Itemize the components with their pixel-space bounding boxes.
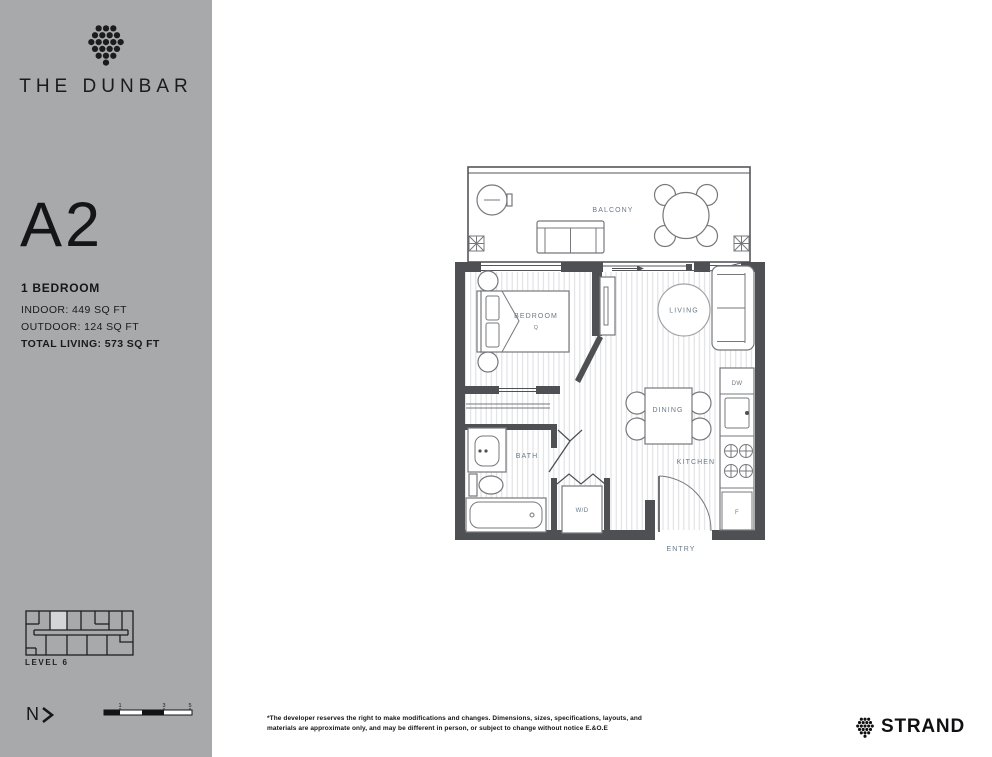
sidebar: THE DUNBAR A2 1 BEDROOM INDOOR: 449 SQ F… <box>0 0 212 757</box>
nightstand <box>478 271 498 291</box>
dishwasher-label: DW <box>732 381 743 387</box>
dining-label: DINING <box>652 407 683 414</box>
planter-icon <box>469 236 484 251</box>
north-chevron-icon <box>40 705 55 725</box>
north-label: N <box>26 704 39 725</box>
entry-label: ENTRY <box>666 546 695 553</box>
strand-wordmark: STRAND <box>881 716 965 738</box>
plan-name: A2 <box>20 194 103 257</box>
brand-title: THE DUNBAR <box>0 76 212 98</box>
strand-logo: STRAND <box>855 716 965 738</box>
bedroom-label: BEDROOM <box>514 313 558 320</box>
stat-outdoor: OUTDOOR: 124 SQ FT <box>21 319 160 336</box>
living-sofa <box>712 266 754 350</box>
vanity-sink <box>468 428 506 472</box>
living-label: LIVING <box>669 308 699 315</box>
building-keyplan <box>24 608 136 662</box>
toilet <box>469 474 503 496</box>
level-label: LEVEL 6 <box>25 658 69 667</box>
balcony-dining-set <box>655 185 718 247</box>
slider-stop <box>686 264 692 270</box>
balcony-sofa <box>537 221 604 253</box>
tv-console <box>600 277 615 335</box>
plan-type: 1 BEDROOM <box>21 281 100 295</box>
stat-indoor: INDOOR: 449 SQ FT <box>21 302 160 319</box>
balcony-label: BALCONY <box>592 207 633 214</box>
north-arrow: N <box>26 704 55 725</box>
kitchen-counter <box>720 368 754 530</box>
planter-icon <box>734 236 749 251</box>
fridge-label: F <box>735 510 739 516</box>
bath-label: BATH <box>516 453 539 460</box>
bathtub <box>466 498 546 532</box>
scale-bar: 1 3 5 <box>102 701 196 718</box>
kitchen-label: KITCHEN <box>677 459 715 466</box>
wd-label: W/D <box>576 508 589 514</box>
plan-stats: INDOOR: 449 SQ FT OUTDOOR: 124 SQ FT TOT… <box>21 302 160 353</box>
floor-plan: BALCONY <box>435 148 795 568</box>
dunbar-logo-icon <box>86 24 126 66</box>
disclaimer-text: *The developer reserves the right to mak… <box>267 714 665 734</box>
strand-logo-icon <box>855 717 875 738</box>
keyplan-unit-highlight <box>50 611 67 630</box>
nightstand <box>478 352 498 372</box>
balcony-area: BALCONY <box>468 167 750 262</box>
bed-size-label: Q <box>534 325 539 331</box>
stat-total: TOTAL LIVING: 573 SQ FT <box>21 336 160 353</box>
